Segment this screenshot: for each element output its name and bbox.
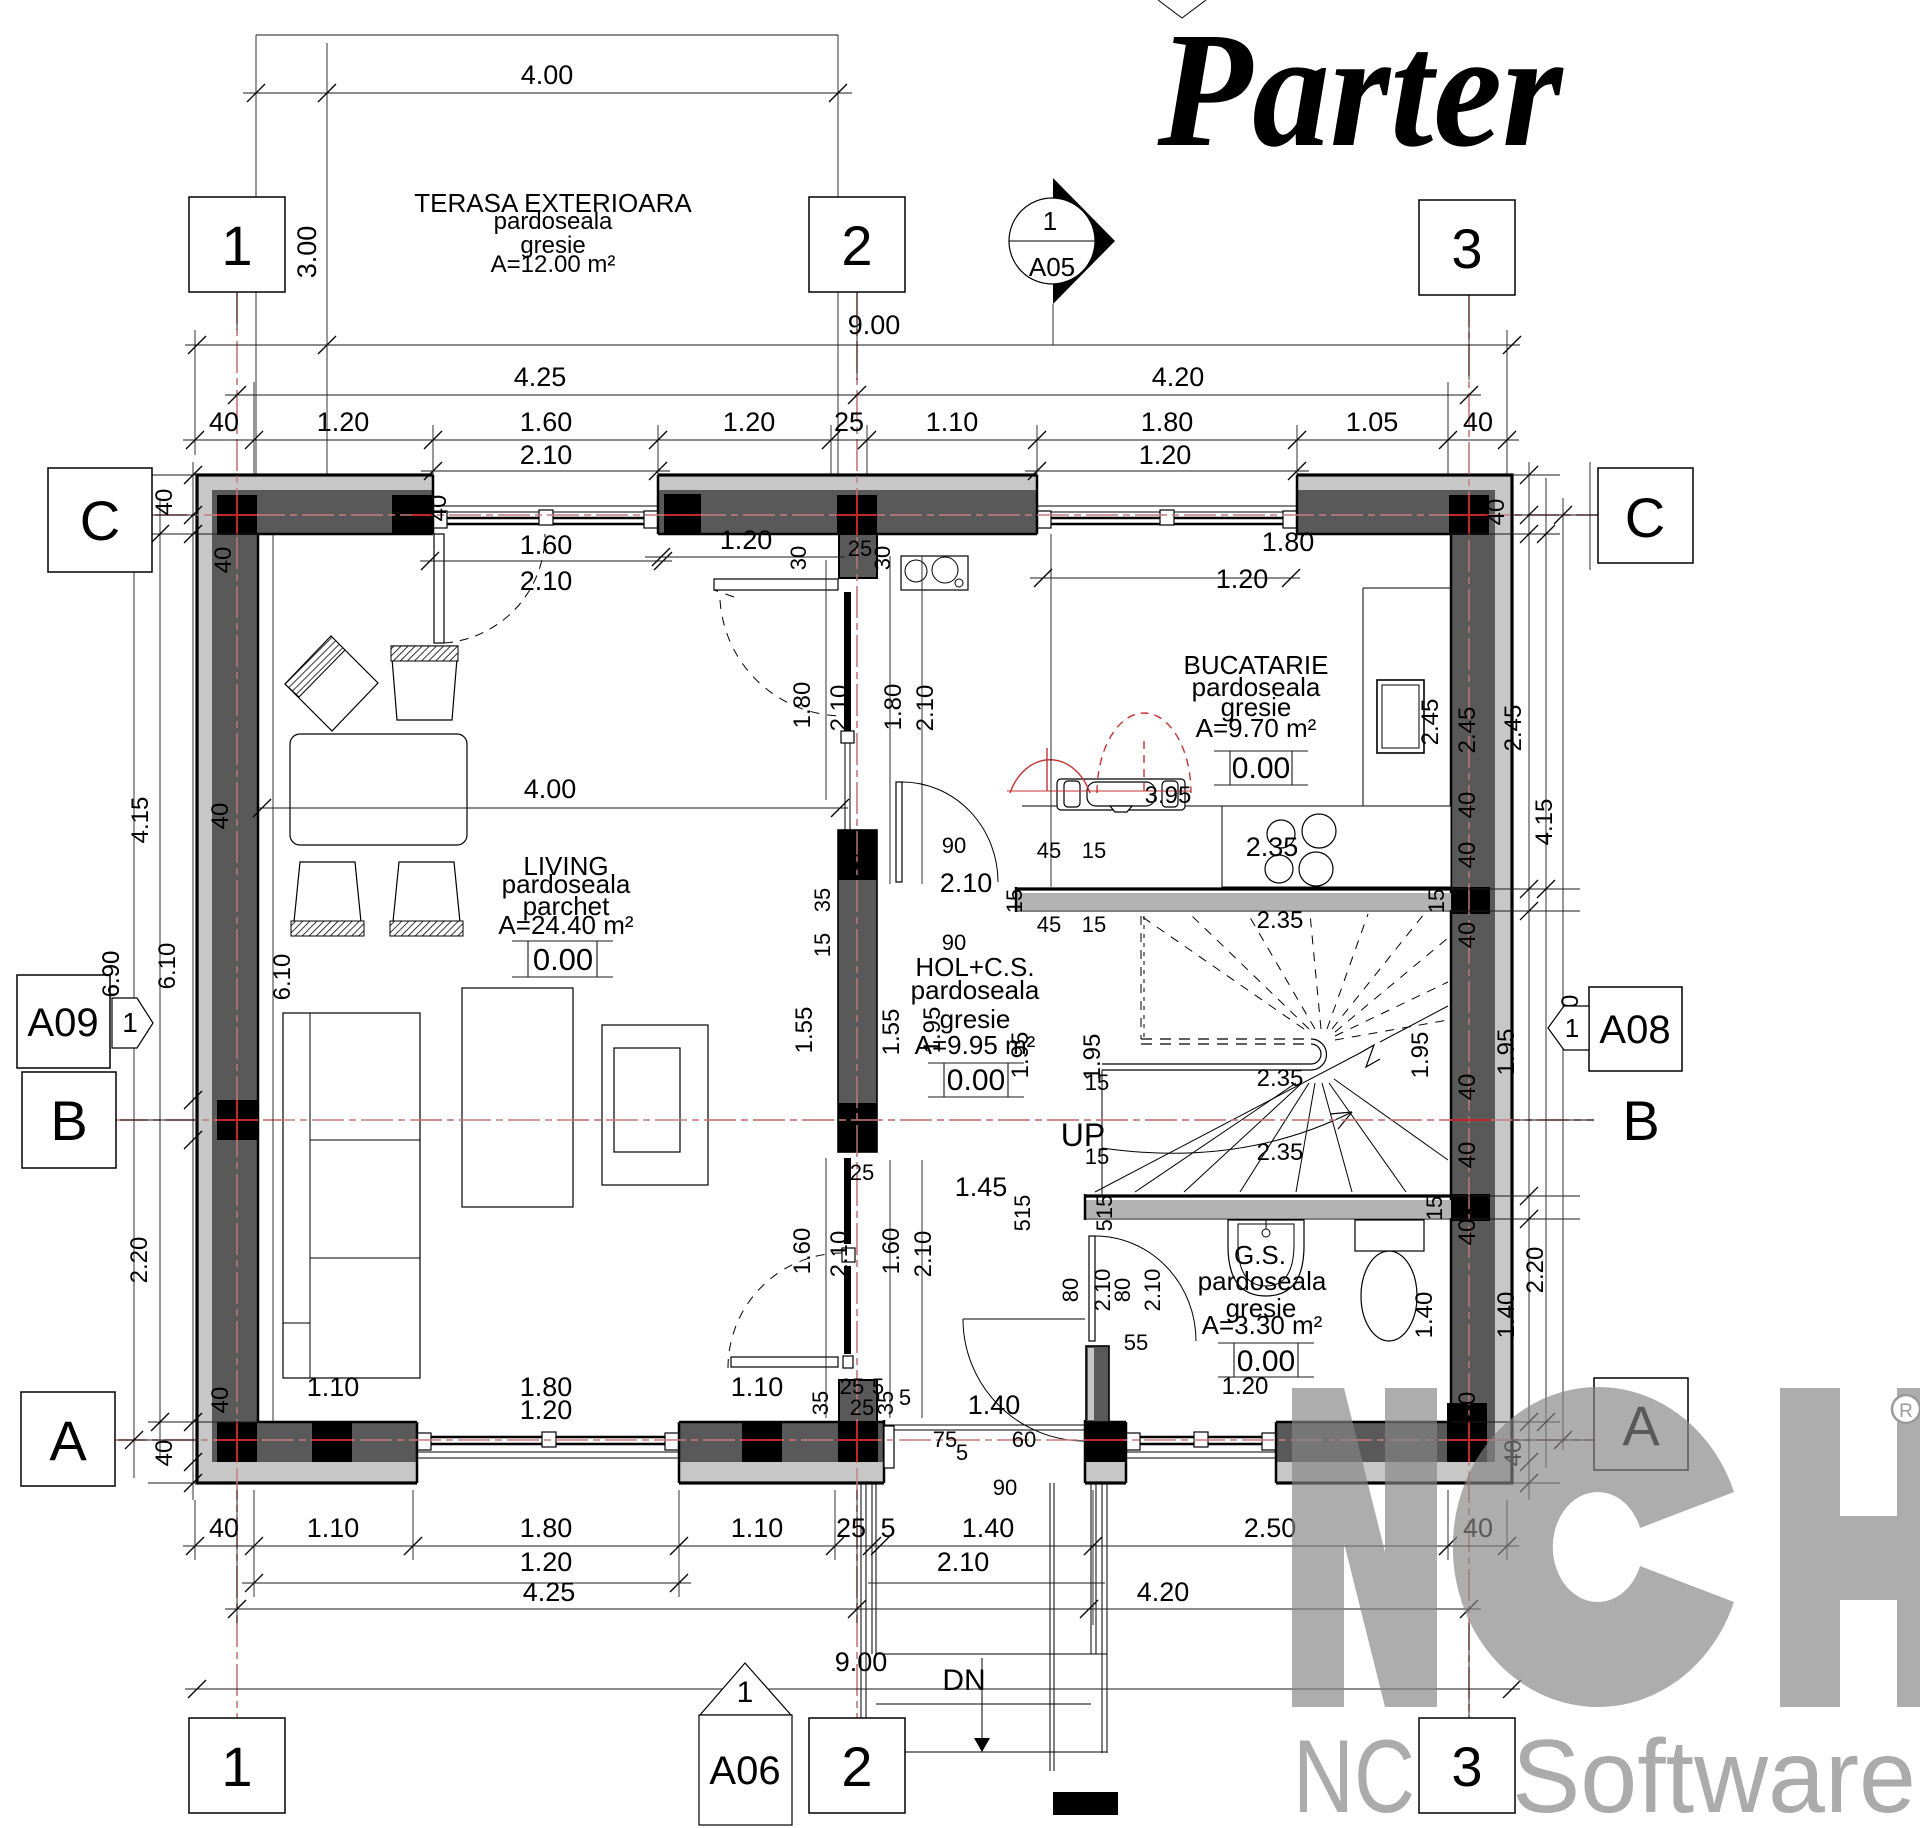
svg-text:40: 40 [1454, 1142, 1481, 1169]
svg-text:1.40: 1.40 [962, 1513, 1015, 1543]
svg-text:25: 25 [848, 536, 872, 561]
svg-text:15: 15 [1082, 838, 1106, 863]
svg-text:Parter: Parter [1157, 0, 1565, 181]
svg-text:4.20: 4.20 [1137, 1577, 1190, 1607]
svg-text:2.20: 2.20 [126, 1237, 153, 1284]
svg-text:1.60: 1.60 [789, 1228, 816, 1275]
svg-text:15: 15 [1082, 912, 1106, 937]
svg-text:30: 30 [786, 546, 811, 570]
svg-text:40: 40 [1454, 842, 1481, 869]
svg-text:pardoseala: pardoseala [1198, 1266, 1327, 1296]
svg-text:C: C [1625, 486, 1665, 549]
svg-text:Software: Software [1512, 1719, 1916, 1828]
svg-text:25: 25 [836, 1513, 866, 1543]
svg-text:5: 5 [899, 1385, 911, 1410]
svg-text:1.40: 1.40 [968, 1390, 1021, 1420]
svg-text:2.10: 2.10 [520, 566, 573, 596]
svg-text:1.20: 1.20 [1216, 564, 1269, 594]
svg-text:1.80: 1.80 [520, 1513, 573, 1543]
svg-text:2.10: 2.10 [826, 685, 853, 732]
svg-text:15: 15 [1002, 889, 1027, 913]
svg-text:2.20: 2.20 [1522, 1247, 1549, 1294]
svg-text:2.35: 2.35 [1257, 1065, 1304, 1092]
svg-text:A05: A05 [1029, 252, 1075, 282]
svg-text:1.10: 1.10 [731, 1372, 784, 1402]
svg-text:1.10: 1.10 [926, 407, 979, 437]
svg-text:A=9.70 m²: A=9.70 m² [1196, 713, 1317, 743]
svg-text:25: 25 [850, 1160, 874, 1185]
svg-text:15: 15 [1424, 889, 1449, 913]
svg-text:2: 2 [841, 1735, 872, 1798]
svg-text:B: B [1622, 1089, 1659, 1152]
svg-text:75: 75 [933, 1427, 957, 1452]
svg-text:40: 40 [425, 495, 452, 522]
svg-text:A09: A09 [27, 1001, 98, 1045]
svg-text:1.60: 1.60 [520, 407, 573, 437]
svg-text:90: 90 [942, 833, 966, 858]
svg-text:40: 40 [207, 1387, 234, 1414]
svg-text:3: 3 [1451, 217, 1482, 280]
svg-text:0.00: 0.00 [1237, 1345, 1295, 1378]
svg-text:2.45: 2.45 [1454, 707, 1481, 754]
svg-text:15: 15 [810, 933, 835, 957]
svg-text:pardoseala: pardoseala [494, 208, 613, 235]
svg-text:0.00: 0.00 [1232, 752, 1290, 785]
svg-text:4.25: 4.25 [514, 362, 567, 392]
svg-text:2: 2 [841, 214, 872, 277]
svg-text:25: 25 [840, 1374, 864, 1399]
svg-text:40: 40 [151, 1440, 178, 1467]
svg-text:1.20: 1.20 [520, 1395, 573, 1425]
svg-text:40: 40 [1463, 407, 1493, 437]
svg-text:45: 45 [1037, 912, 1061, 937]
svg-text:1.20: 1.20 [720, 525, 773, 555]
svg-text:1.10: 1.10 [307, 1372, 360, 1402]
svg-text:2.50: 2.50 [1244, 1513, 1297, 1543]
svg-text:A=9.95 m²: A=9.95 m² [915, 1030, 1036, 1060]
svg-text:1.05: 1.05 [1346, 407, 1399, 437]
svg-text:2.10: 2.10 [826, 1231, 853, 1278]
svg-text:35: 35 [810, 888, 835, 912]
svg-text:40: 40 [210, 547, 237, 574]
svg-text:80: 80 [1110, 1278, 1135, 1302]
svg-text:C: C [80, 489, 120, 552]
svg-text:40: 40 [1454, 1219, 1481, 1246]
svg-text:2.45: 2.45 [1500, 705, 1527, 752]
svg-text:3.95: 3.95 [1145, 782, 1192, 809]
svg-text:3: 3 [1451, 1735, 1482, 1798]
svg-text:5: 5 [880, 1513, 895, 1543]
svg-text:40: 40 [1483, 499, 1510, 526]
svg-text:A=24.40 m²: A=24.40 m² [498, 910, 633, 940]
svg-text:1.45: 1.45 [955, 1172, 1008, 1202]
svg-text:1.20: 1.20 [317, 407, 370, 437]
svg-text:2.10: 2.10 [937, 1547, 990, 1577]
svg-text:2.10: 2.10 [940, 868, 993, 898]
svg-text:1.80: 1.80 [1141, 407, 1194, 437]
svg-text:40: 40 [1454, 922, 1481, 949]
svg-text:A08: A08 [1599, 1008, 1670, 1052]
svg-text:25: 25 [850, 850, 874, 875]
svg-text:40: 40 [151, 489, 178, 516]
svg-text:55: 55 [1124, 1330, 1148, 1355]
svg-text:6.10: 6.10 [154, 943, 181, 990]
svg-text:15: 15 [1085, 1070, 1109, 1095]
svg-text:15: 15 [1085, 1144, 1109, 1169]
svg-text:1: 1 [221, 1735, 252, 1798]
svg-text:2.35: 2.35 [1257, 1139, 1304, 1166]
svg-text:1.10: 1.10 [731, 1513, 784, 1543]
svg-text:A06: A06 [709, 1749, 780, 1793]
svg-text:1.60: 1.60 [520, 530, 573, 560]
svg-text:515: 515 [1092, 1195, 1117, 1232]
svg-text:0.00: 0.00 [947, 1064, 1005, 1097]
svg-text:4.15: 4.15 [1531, 799, 1558, 846]
svg-text:45: 45 [1037, 838, 1061, 863]
svg-text:1.55: 1.55 [791, 1007, 818, 1054]
svg-text:2.35: 2.35 [1257, 907, 1304, 934]
svg-text:90: 90 [993, 1475, 1017, 1500]
svg-text:A: A [49, 1409, 87, 1472]
svg-text:40: 40 [1454, 792, 1481, 819]
svg-text:35: 35 [808, 1391, 833, 1415]
svg-text:1.60: 1.60 [878, 1228, 905, 1275]
svg-text:R: R [1899, 1401, 1913, 1422]
svg-text:1.95: 1.95 [1493, 1029, 1520, 1076]
svg-text:515: 515 [1010, 1195, 1035, 1232]
svg-text:5: 5 [956, 1440, 968, 1465]
svg-text:6.90: 6.90 [98, 951, 125, 998]
svg-text:1.20: 1.20 [723, 407, 776, 437]
svg-text:9.00: 9.00 [835, 1647, 888, 1677]
svg-text:1.55: 1.55 [878, 1009, 905, 1056]
svg-text:1.80: 1.80 [880, 684, 907, 731]
svg-text:2.45: 2.45 [1417, 699, 1444, 746]
svg-text:2.10: 2.10 [1140, 1269, 1165, 1312]
svg-text:1.80: 1.80 [1262, 527, 1315, 557]
svg-text:4.15: 4.15 [127, 797, 154, 844]
svg-text:2.10: 2.10 [520, 440, 573, 470]
svg-text:1.95: 1.95 [1407, 1032, 1434, 1079]
svg-text:4.00: 4.00 [524, 774, 577, 804]
svg-text:60: 60 [1012, 1427, 1036, 1452]
svg-text:A=12.00 m²: A=12.00 m² [491, 251, 616, 278]
svg-text:5: 5 [872, 1374, 884, 1399]
svg-text:30: 30 [870, 546, 895, 570]
svg-text:A=3.30 m²: A=3.30 m² [1202, 1310, 1323, 1340]
svg-text:80: 80 [1058, 1278, 1083, 1302]
svg-text:2.10: 2.10 [912, 685, 939, 732]
svg-text:1.40: 1.40 [1411, 1292, 1438, 1339]
svg-text:1.10: 1.10 [307, 1513, 360, 1543]
svg-text:2.10: 2.10 [910, 1231, 937, 1278]
svg-text:4.25: 4.25 [523, 1577, 576, 1607]
svg-text:1: 1 [221, 214, 252, 277]
svg-text:40: 40 [209, 407, 239, 437]
svg-text:1: 1 [1043, 206, 1057, 236]
svg-text:15: 15 [1422, 1196, 1447, 1220]
svg-text:B: B [50, 1089, 87, 1152]
svg-text:1.80: 1.80 [789, 682, 816, 729]
svg-text:4.00: 4.00 [521, 60, 574, 90]
svg-text:4.20: 4.20 [1152, 362, 1205, 392]
svg-text:40: 40 [207, 803, 234, 830]
svg-text:40: 40 [209, 1513, 239, 1543]
svg-text:6.10: 6.10 [269, 954, 296, 1001]
svg-text:1.40: 1.40 [1493, 1292, 1520, 1339]
svg-text:0.00: 0.00 [533, 942, 593, 977]
svg-text:1.20: 1.20 [1139, 440, 1192, 470]
svg-text:25: 25 [834, 407, 864, 437]
svg-text:2.35: 2.35 [1246, 832, 1299, 862]
svg-text:1: 1 [122, 1007, 138, 1038]
svg-text:3.00: 3.00 [292, 226, 322, 279]
svg-text:9.00: 9.00 [848, 310, 901, 340]
svg-text:40: 40 [1454, 1392, 1481, 1419]
svg-text:pardoseala: pardoseala [911, 975, 1040, 1005]
svg-text:1: 1 [737, 1676, 754, 1709]
svg-text:40: 40 [1454, 1074, 1481, 1101]
svg-text:DN: DN [942, 1664, 985, 1697]
svg-text:1.20: 1.20 [520, 1547, 573, 1577]
svg-text:1: 1 [1565, 1013, 1579, 1043]
